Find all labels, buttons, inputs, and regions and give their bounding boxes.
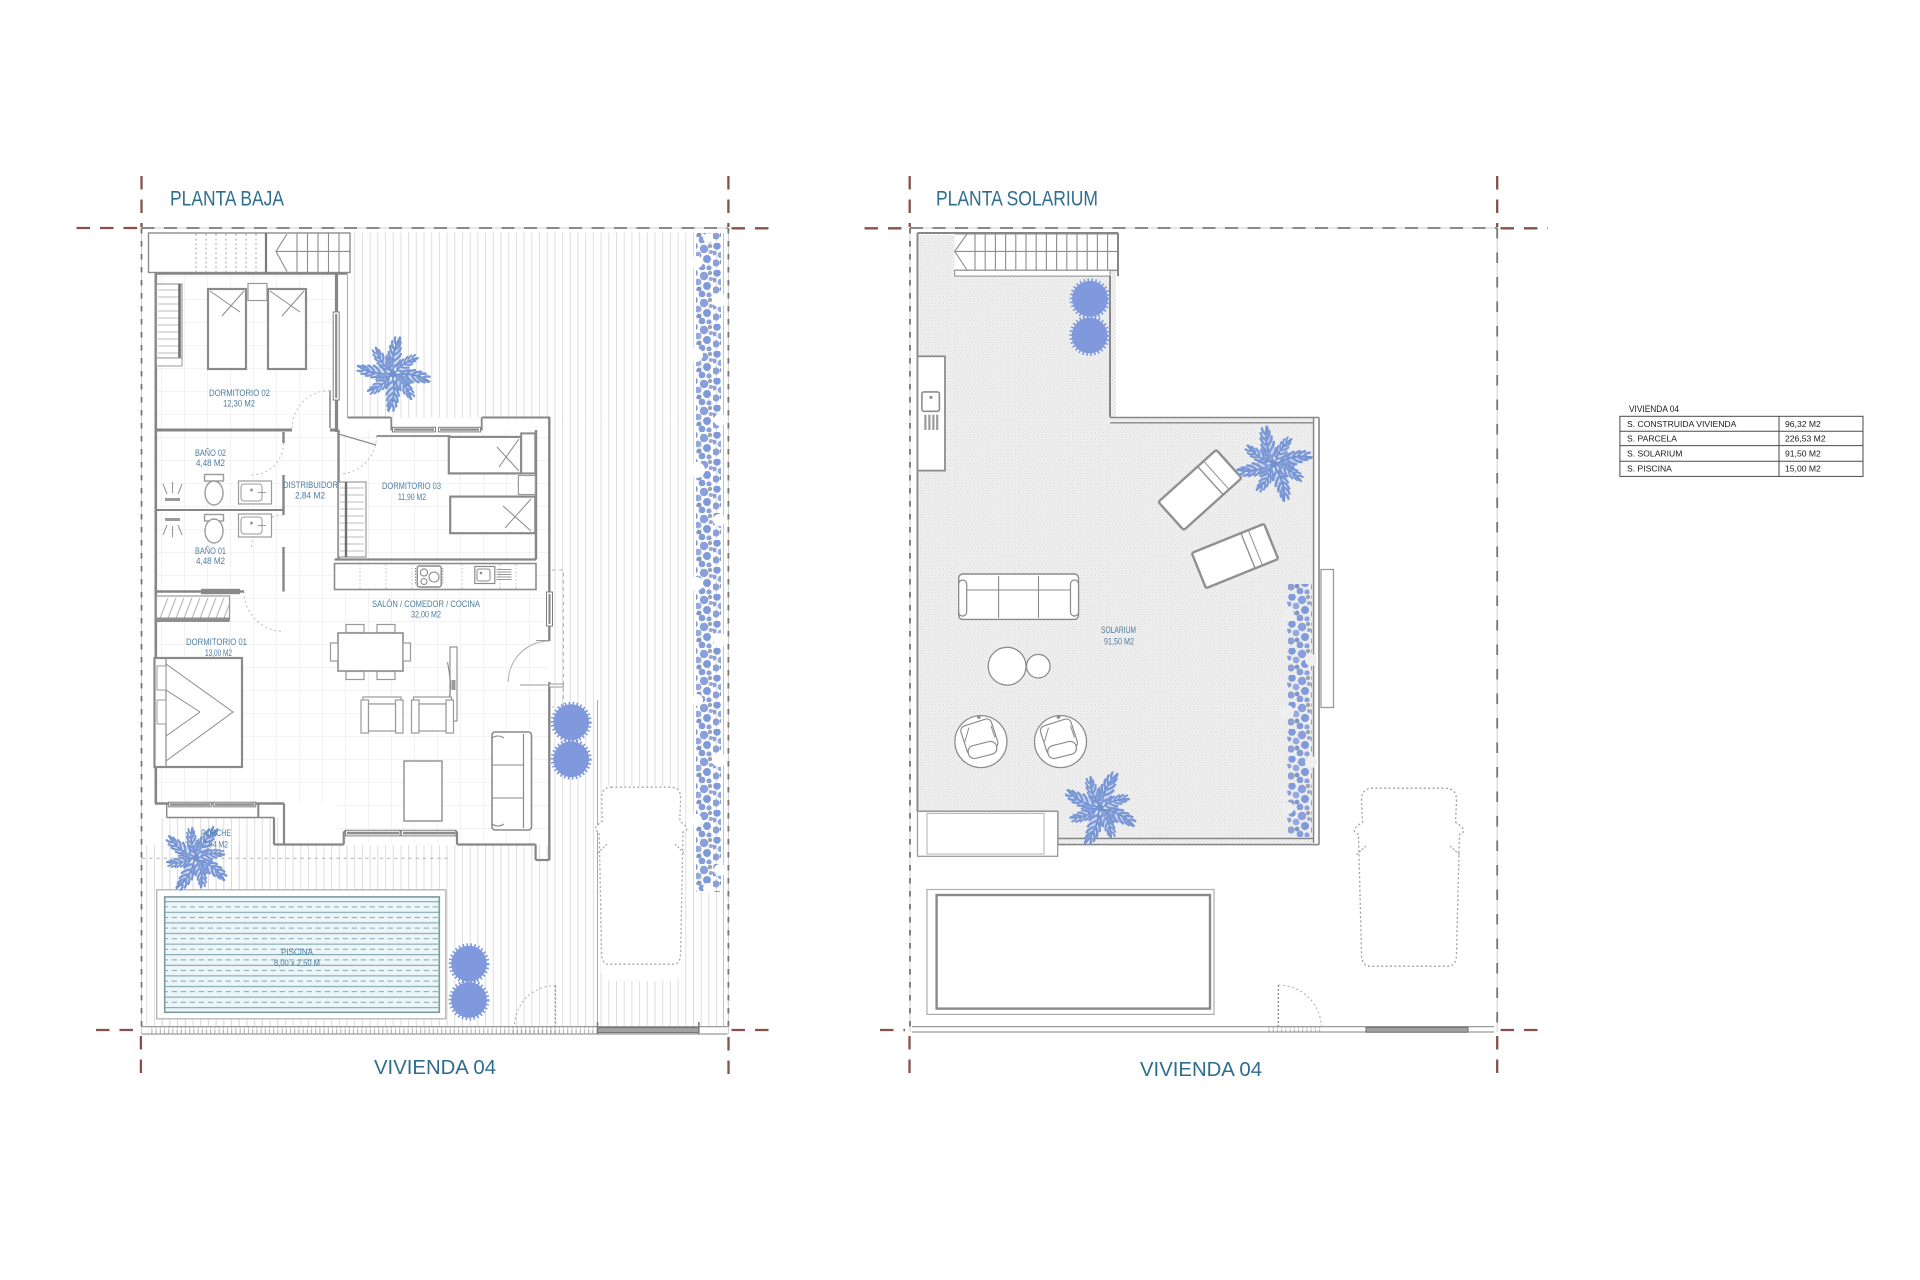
svg-text:15,00 M2: 15,00 M2: [1785, 464, 1821, 474]
svg-text:32,00 M2: 32,00 M2: [411, 610, 441, 620]
svg-text:DORMITORIO 03: DORMITORIO 03: [382, 481, 441, 491]
svg-text:4,48 M2: 4,48 M2: [196, 458, 225, 468]
svg-text:4,48 M2: 4,48 M2: [196, 556, 225, 566]
svg-text:SALÓN / COMEDOR / COCINA: SALÓN / COMEDOR / COCINA: [372, 599, 480, 609]
svg-text:PLANTA BAJA: PLANTA BAJA: [170, 188, 284, 211]
svg-text:11,90 M2: 11,90 M2: [398, 492, 426, 502]
svg-text:226,53 M2: 226,53 M2: [1785, 434, 1826, 444]
svg-text:VIVIENDA 04: VIVIENDA 04: [1140, 1059, 1262, 1081]
svg-text:91,50 M2: 91,50 M2: [1785, 449, 1821, 459]
svg-text:91,50 M2: 91,50 M2: [1104, 637, 1134, 647]
svg-text:S. PARCELA: S. PARCELA: [1627, 434, 1677, 444]
svg-text:SOLARIUM: SOLARIUM: [1101, 625, 1136, 635]
svg-text:7,04 M2: 7,04 M2: [203, 840, 228, 850]
svg-text:PISCINA: PISCINA: [281, 947, 313, 957]
svg-text:PORCHE: PORCHE: [201, 828, 231, 838]
svg-text:VIVIENDA 04: VIVIENDA 04: [1629, 404, 1679, 415]
svg-text:8,00 x 2,50 M: 8,00 x 2,50 M: [274, 958, 320, 968]
svg-text:PLANTA SOLARIUM: PLANTA SOLARIUM: [936, 188, 1098, 211]
svg-text:13,00 M2: 13,00 M2: [205, 648, 232, 658]
svg-text:BAÑO 01: BAÑO 01: [195, 546, 226, 556]
svg-text:S. PISCINA: S. PISCINA: [1627, 464, 1672, 474]
svg-text:2,84 M2: 2,84 M2: [295, 491, 325, 501]
svg-text:S. SOLARIUM: S. SOLARIUM: [1627, 449, 1682, 459]
svg-text:12,30 M2: 12,30 M2: [223, 399, 255, 409]
svg-text:S. CONSTRUIDA VIVIENDA: S. CONSTRUIDA VIVIENDA: [1627, 419, 1737, 429]
svg-text:96,32 M2: 96,32 M2: [1785, 419, 1821, 429]
svg-text:DISTRIBUIDOR: DISTRIBUIDOR: [283, 480, 338, 490]
svg-text:DORMITORIO 01: DORMITORIO 01: [186, 637, 247, 647]
svg-text:DORMITORIO 02: DORMITORIO 02: [209, 388, 270, 398]
svg-text:BAÑO 02: BAÑO 02: [195, 448, 226, 458]
svg-text:VIVIENDA 04: VIVIENDA 04: [374, 1057, 496, 1079]
